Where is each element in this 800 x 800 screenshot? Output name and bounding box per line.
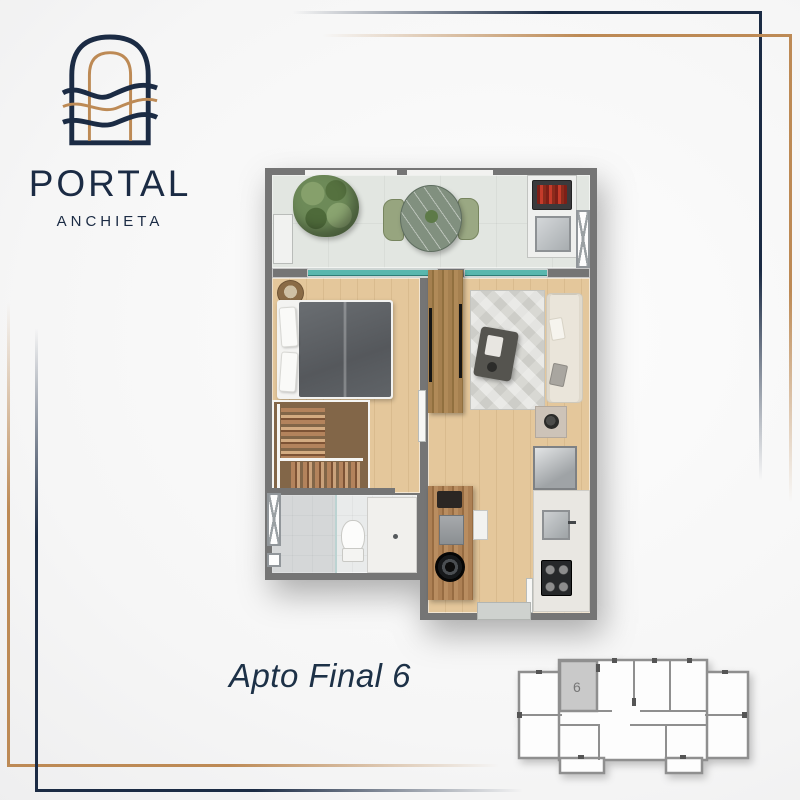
rack-frame <box>277 404 280 488</box>
tv-screen-bedroom-side <box>429 308 432 382</box>
kitchen-sink <box>542 510 570 540</box>
keyplan-bottom-tab <box>666 758 702 773</box>
utility-shaft-right <box>576 210 590 268</box>
washing-machine <box>435 552 465 582</box>
island-appliance <box>439 515 464 545</box>
bed-duvet <box>299 302 391 397</box>
clothes-rack-horizontal <box>291 462 361 488</box>
brand-subtitle: ANCHIETA <box>15 213 205 230</box>
bathroom-wall <box>272 488 395 495</box>
frame-gold-left-line <box>7 303 10 766</box>
table-centerpiece-plant <box>425 210 438 223</box>
page: PORTAL ANCHIETA <box>0 0 800 800</box>
key-plan: 6 <box>512 650 752 778</box>
brand-logo-block: PORTAL ANCHIETA <box>15 24 205 230</box>
frame-navy-left-line <box>35 328 38 791</box>
tv-panel-divider <box>428 270 463 413</box>
vanity-counter <box>367 497 417 573</box>
bed-pillow <box>279 351 299 392</box>
utility-shaft-left <box>267 493 281 546</box>
keyplan-bottom-tab <box>560 758 604 773</box>
refrigerator <box>533 446 577 490</box>
frame-gold-right-line <box>789 34 792 502</box>
unit-caption: Apto Final 6 <box>195 657 445 695</box>
frame-navy-right-line <box>759 11 762 481</box>
toilet-tank <box>342 548 364 562</box>
island-stool <box>473 510 488 540</box>
vanity-faucet <box>393 534 398 539</box>
bathroom-door <box>418 390 426 442</box>
shower-area <box>272 495 335 573</box>
vase <box>544 414 559 429</box>
wall-niche <box>267 553 281 567</box>
frame-navy-top-line <box>292 11 762 14</box>
rack-frame <box>277 458 363 461</box>
wall-segment <box>547 268 590 278</box>
frame-navy-bottom-line <box>35 789 523 792</box>
wall-segment <box>272 268 308 278</box>
shower-glass-panel <box>335 495 337 573</box>
kitchen-faucet <box>568 521 576 524</box>
keyplan-unit-number: 6 <box>573 679 581 695</box>
coffee-machine <box>437 491 462 508</box>
interior-wall <box>420 278 428 390</box>
tv-screen-living-side <box>459 304 462 378</box>
potted-plant <box>293 175 359 237</box>
sofa <box>546 293 583 403</box>
grill-coals <box>537 185 567 204</box>
window-slat <box>407 170 493 175</box>
outdoor-sink <box>535 216 571 252</box>
table-tray <box>484 335 503 357</box>
balcony-bench <box>273 214 293 264</box>
clothes-rack-vertical <box>281 408 325 460</box>
doormat <box>477 602 531 620</box>
frame-gold-bottom-line <box>7 764 499 767</box>
gas-cooktop <box>541 560 572 596</box>
floor-plan <box>265 168 597 620</box>
interior-wall <box>420 468 428 613</box>
frame-gold-top-line <box>322 34 792 37</box>
arch-waves-icon <box>61 24 159 148</box>
bed-pillow <box>279 306 299 347</box>
table-cup <box>487 362 497 372</box>
brand-name: PORTAL <box>15 163 205 205</box>
